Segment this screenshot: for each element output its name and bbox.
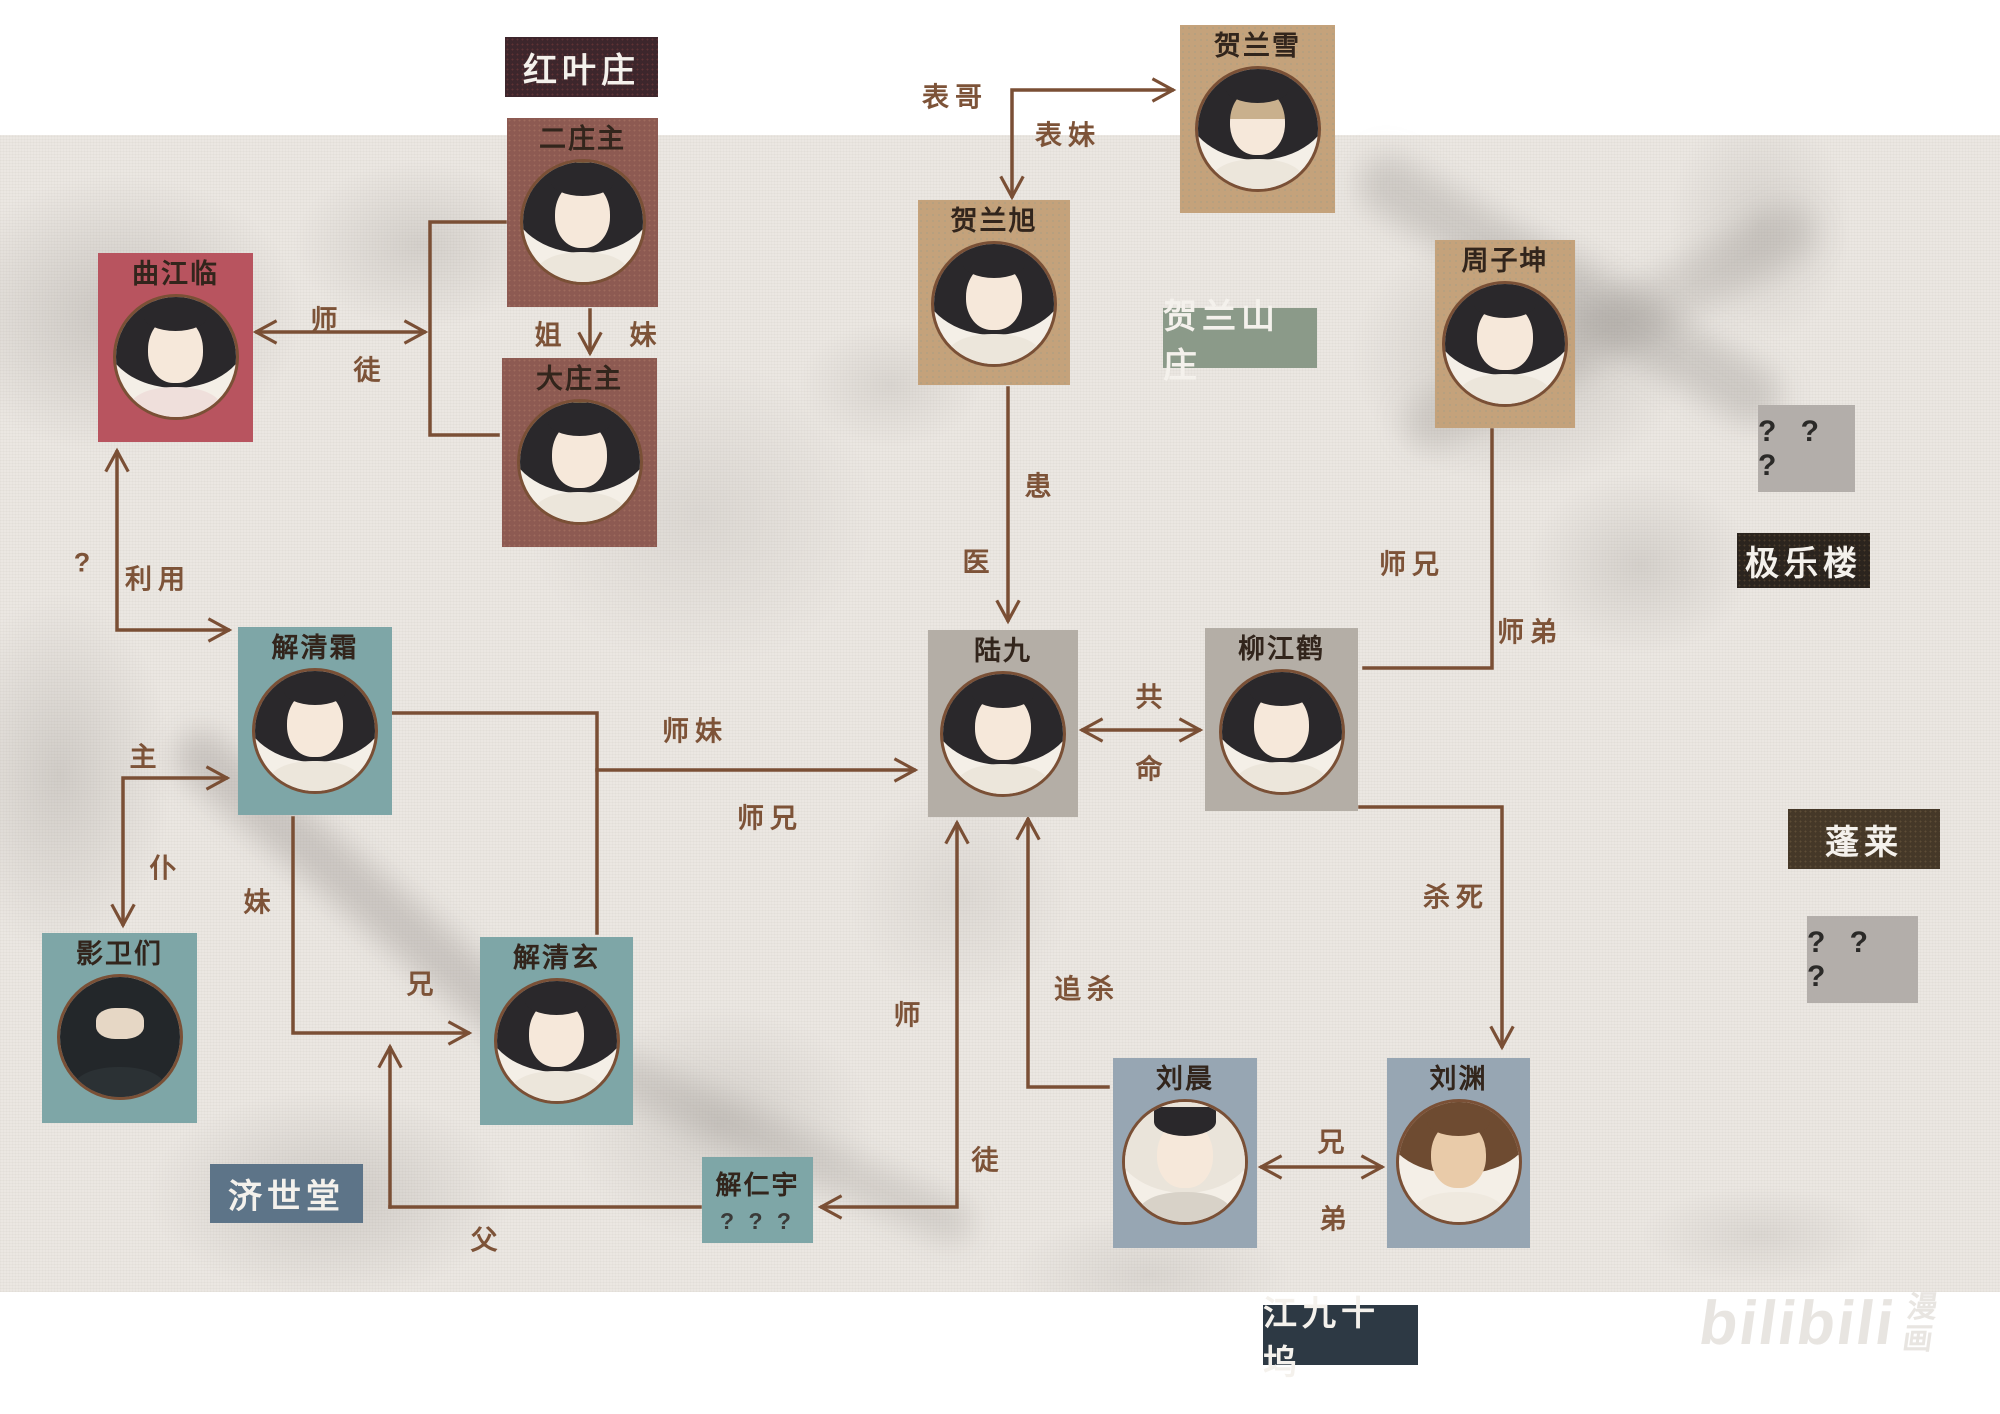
bilibili-logo: bilibili: [1695, 1288, 1900, 1359]
relation-label-pu: 仆: [150, 847, 183, 886]
character-card-liujianghe: 柳江鹤: [1205, 628, 1358, 811]
character-name: 解清霜: [272, 632, 359, 664]
portrait-qujianglin: [113, 294, 239, 420]
portrait-erzhuangzhu: [520, 159, 646, 285]
character-name: 二庄主: [539, 123, 626, 155]
relation-label-shimei: 师妹: [662, 710, 728, 749]
manhua-label: 漫 画: [1901, 1292, 1940, 1356]
relation-label-tu2: 徒: [972, 1139, 1005, 1178]
relation-label-tu: 徒: [354, 349, 387, 388]
faction-jilelou: 极乐楼: [1737, 533, 1870, 588]
relation-label-mei2: 妹: [244, 881, 277, 920]
character-card-helanxu: 贺兰旭: [918, 200, 1070, 385]
manhua-char-bottom: 画: [1901, 1324, 1935, 1356]
character-subtitle: ? ? ?: [720, 1208, 795, 1235]
bilibili-watermark: bilibili 漫 画: [1695, 1288, 1940, 1359]
unknown-box-penglai: ? ? ?: [1807, 916, 1918, 1003]
unknown-box-jilelou: ? ? ?: [1758, 405, 1855, 492]
faction-jiangjiushiwu: 江九十坞: [1263, 1305, 1418, 1365]
character-card-lujiu: 陆九: [928, 630, 1078, 817]
character-name: 刘渊: [1430, 1063, 1488, 1095]
relation-label-shidi: 师弟: [1497, 611, 1563, 650]
faction-label: 极乐楼: [1745, 536, 1862, 585]
relation-label-huan: 患: [1025, 465, 1058, 504]
relation-label-di: 弟: [1320, 1198, 1353, 1237]
relation-label-mei: 妹: [630, 314, 663, 353]
character-name: 影卫们: [76, 938, 163, 970]
faction-label: 蓬莱: [1825, 815, 1903, 864]
manhua-char-top: 漫: [1905, 1292, 1939, 1324]
relation-label-zhu: 主: [130, 736, 163, 775]
portrait-dazhuangzhu: [517, 399, 643, 525]
character-name: 大庄主: [536, 363, 623, 395]
character-name: 周子坤: [1462, 245, 1549, 277]
relation-label-zhuisha: 追杀: [1054, 968, 1120, 1007]
character-card-qujianglin: 曲江临: [98, 253, 253, 442]
relation-label-biaoge: 表哥: [922, 76, 988, 115]
character-card-helanxue: 贺兰雪: [1180, 25, 1335, 213]
portrait-yingweimen: [57, 974, 183, 1100]
relation-label-shasi: 杀死: [1423, 876, 1489, 915]
character-card-dazhuangzhu: 大庄主: [502, 358, 657, 547]
portrait-helanxue: [1195, 66, 1321, 192]
character-card-erzhuangzhu: 二庄主: [507, 118, 658, 307]
relationship-chart: 红叶庄 贺兰山庄 极乐楼 蓬莱 济世堂 江九十坞 ? ? ? ? ? ? 曲江临…: [0, 0, 2000, 1414]
relation-label-question: ?: [74, 548, 97, 579]
faction-helanshanzhuang: 贺兰山庄: [1163, 308, 1317, 368]
portrait-helanxu: [931, 241, 1057, 367]
relation-label-shixiong-zhou: 师兄: [1379, 543, 1445, 582]
faction-label: 江九十坞: [1263, 1286, 1418, 1384]
relation-label-yi: 医: [963, 541, 996, 580]
relation-label-ming: 命: [1136, 748, 1169, 787]
relation-label-shi2: 师: [894, 994, 927, 1033]
portrait-zhouzikun: [1442, 281, 1568, 407]
character-name: 柳江鹤: [1238, 633, 1325, 665]
portrait-liuyuan: [1396, 1099, 1522, 1225]
portrait-xieqingxuan: [494, 978, 620, 1104]
unknown-label: ? ? ?: [1807, 926, 1918, 994]
character-card-liuchen: 刘晨: [1113, 1058, 1257, 1248]
character-name: 贺兰旭: [951, 205, 1038, 237]
relation-label-biaomei: 表妹: [1035, 114, 1101, 153]
portrait-xieqingshuang: [252, 668, 378, 794]
character-name: 陆九: [974, 635, 1032, 667]
relation-label-jie: 姐: [535, 314, 568, 353]
relation-label-shixiong-lu: 师兄: [737, 797, 803, 836]
character-card-xieqingxuan: 解清玄: [480, 937, 633, 1125]
faction-label: 贺兰山庄: [1163, 289, 1317, 387]
character-card-xierenyu: 解仁宇 ? ? ?: [702, 1157, 813, 1243]
relation-label-gong: 共: [1136, 676, 1169, 715]
character-name: 贺兰雪: [1214, 30, 1301, 62]
faction-penglai: 蓬莱: [1788, 809, 1940, 869]
relation-label-xiong3: 兄: [1318, 1121, 1351, 1160]
faction-label: 济世堂: [228, 1169, 345, 1218]
relation-label-liyong: 利用: [125, 558, 191, 597]
unknown-label: ? ? ?: [1758, 415, 1855, 483]
relation-label-fu: 父: [471, 1219, 504, 1258]
faction-hongyezhuang: 红叶庄: [505, 37, 658, 97]
portrait-lujiu: [940, 671, 1066, 797]
character-card-zhouzikun: 周子坤: [1435, 240, 1575, 428]
character-name: 刘晨: [1156, 1063, 1214, 1095]
portrait-liujianghe: [1219, 669, 1345, 795]
faction-label: 红叶庄: [523, 43, 640, 92]
character-card-yingweimen: 影卫们: [42, 933, 197, 1123]
character-name: 解仁宇: [715, 1165, 799, 1202]
character-name: 曲江临: [132, 258, 219, 290]
character-card-xieqingshuang: 解清霜: [238, 627, 392, 815]
character-card-liuyuan: 刘渊: [1387, 1058, 1530, 1248]
relation-label-xiong2: 兄: [407, 963, 440, 1002]
faction-jishitang: 济世堂: [210, 1164, 363, 1223]
character-name: 解清玄: [513, 942, 600, 974]
relation-label-shi: 师: [311, 299, 344, 338]
portrait-liuchen: [1122, 1099, 1248, 1225]
